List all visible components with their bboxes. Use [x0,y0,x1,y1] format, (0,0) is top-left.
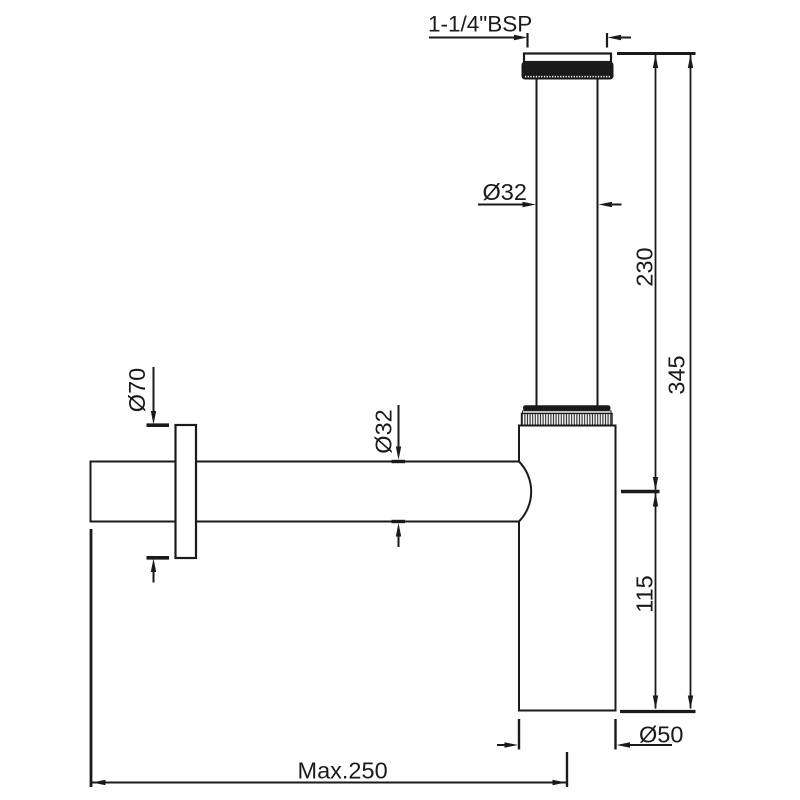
svg-text:Ø32: Ø32 [371,409,397,453]
svg-text:Ø50: Ø50 [639,722,683,748]
svg-text:115: 115 [632,575,658,612]
svg-text:Ø70: Ø70 [124,368,150,412]
svg-text:Ø32: Ø32 [483,179,527,205]
svg-text:345: 345 [664,355,690,394]
svg-text:230: 230 [632,247,658,286]
svg-text:1-1/4"BSP: 1-1/4"BSP [428,12,532,37]
svg-text:Max.250: Max.250 [298,758,388,784]
